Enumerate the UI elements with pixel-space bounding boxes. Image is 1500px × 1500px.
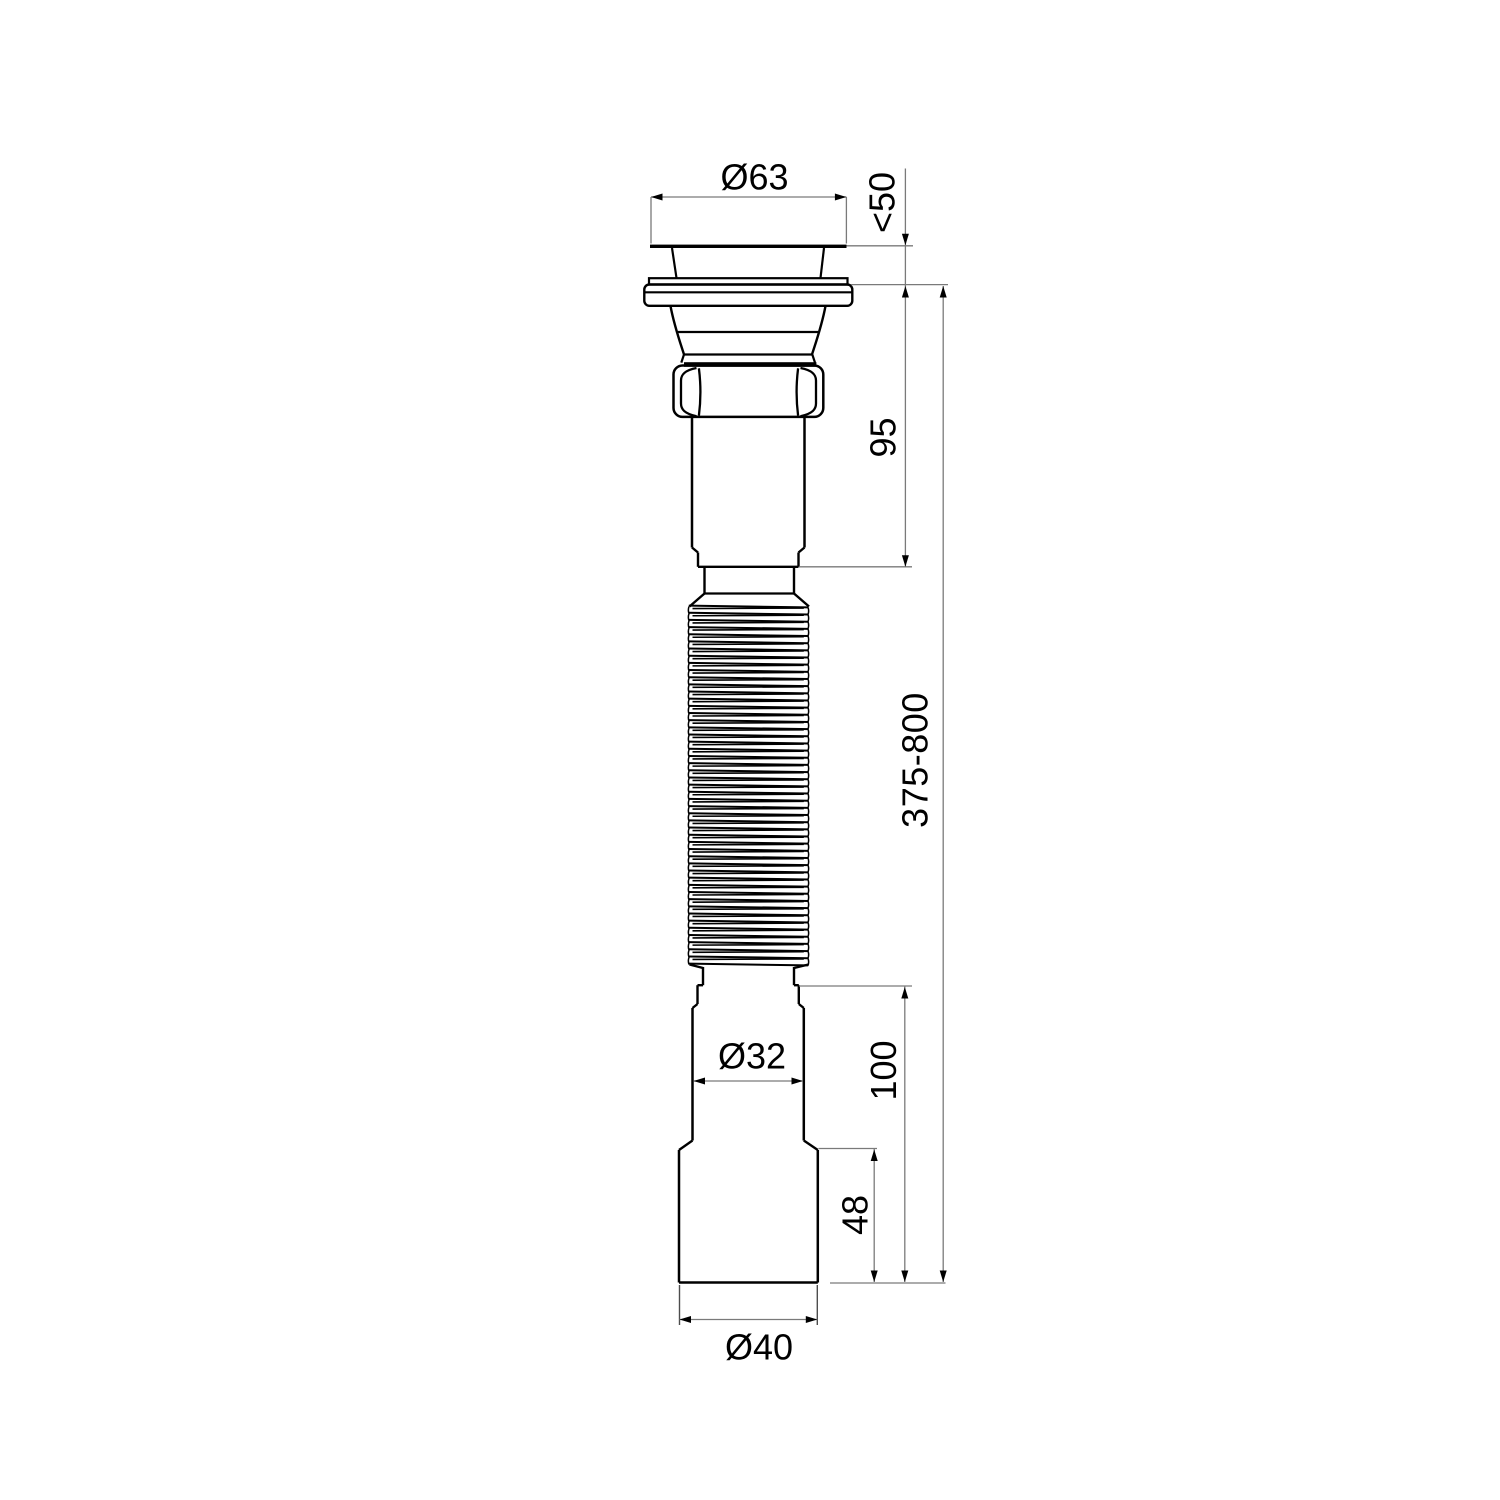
svg-text:Ø40: Ø40: [725, 1327, 793, 1368]
svg-text:Ø32: Ø32: [718, 1036, 786, 1077]
svg-text:95: 95: [863, 417, 904, 457]
svg-text:375-800: 375-800: [895, 692, 936, 828]
svg-text:100: 100: [863, 1040, 904, 1100]
svg-text:Ø63: Ø63: [720, 157, 788, 198]
svg-text:48: 48: [835, 1195, 876, 1235]
svg-text:<50: <50: [862, 172, 903, 233]
